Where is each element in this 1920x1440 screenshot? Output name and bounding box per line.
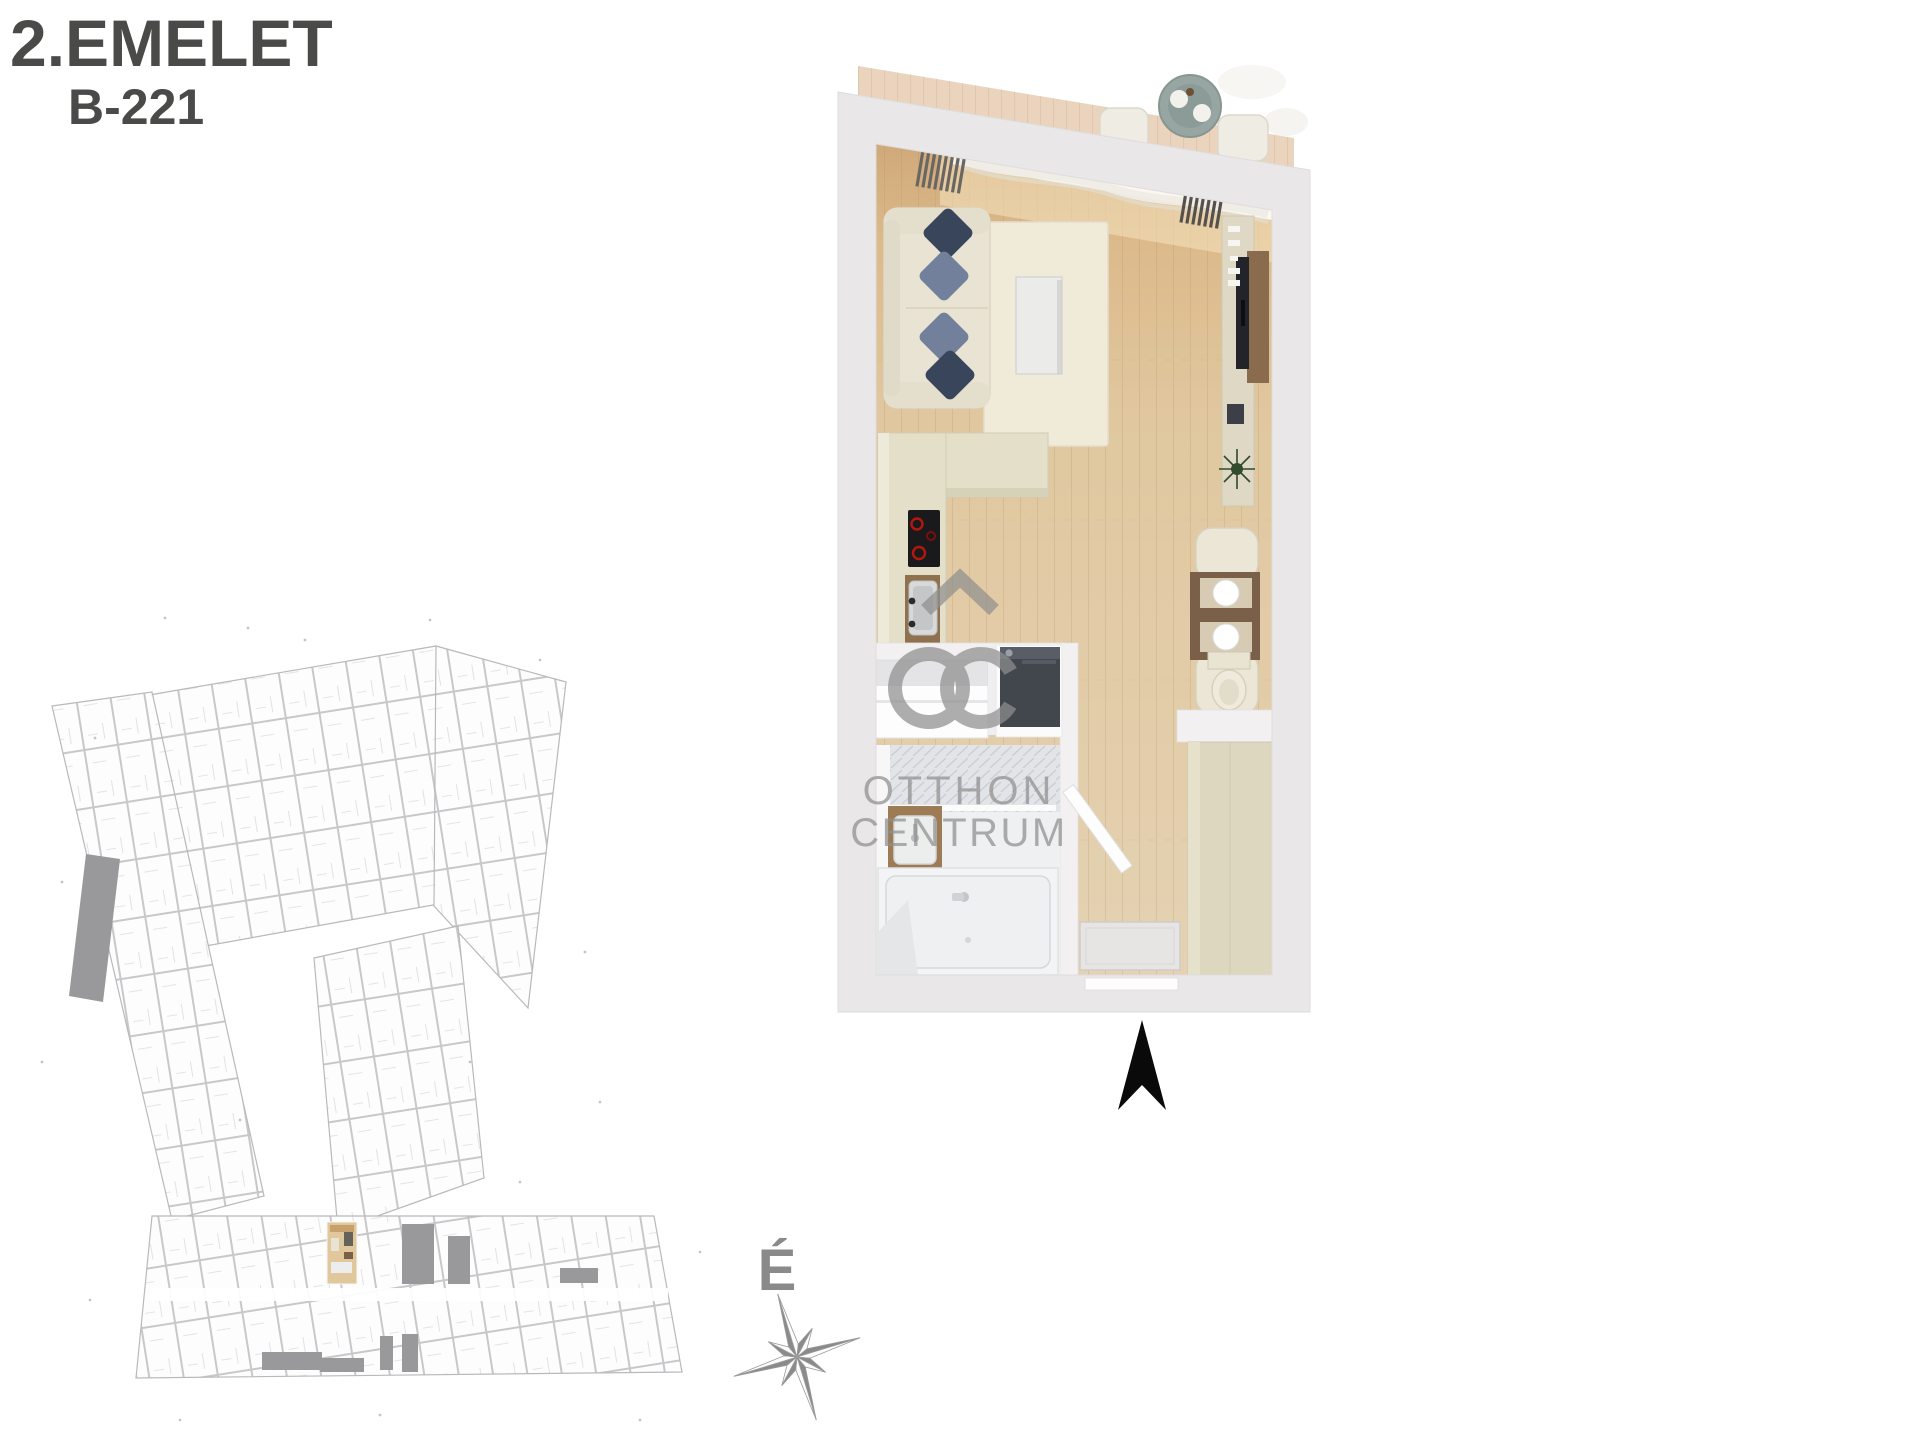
site-plan-shaft [402, 1334, 418, 1372]
balcony-lounge-cushion [1218, 65, 1286, 99]
balcony-chair [1218, 115, 1268, 161]
site-plan-shaft [262, 1352, 322, 1370]
balcony-plate [1170, 90, 1188, 108]
balcony-cup [1186, 88, 1194, 96]
site-plan-wing-middle [314, 926, 484, 1230]
site-plan-highlighted-unit [327, 1222, 357, 1284]
north-arrow [1118, 1020, 1166, 1110]
balcony-lounge-cushion [1264, 108, 1308, 136]
apartment-plan [838, 60, 1310, 1012]
toilet [1208, 652, 1250, 710]
floorplan-scene: OTTHON CENTRUM É [0, 0, 1920, 1440]
site-plan-shaft [402, 1224, 434, 1284]
site-plan-shaft [560, 1268, 598, 1283]
sofa [884, 206, 990, 408]
bathtub [878, 868, 1058, 975]
site-plan [41, 617, 702, 1422]
page: OTTHON CENTRUM É [0, 0, 1920, 1440]
site-plan-shaft [448, 1236, 470, 1284]
entrance-door [1085, 978, 1178, 990]
coffee-table [1016, 277, 1062, 374]
title-block: 2.EMELET B-221 [10, 10, 333, 132]
site-plan-shaft [380, 1336, 393, 1370]
watermark-line2: CENTRUM [850, 811, 1067, 855]
plate [1213, 624, 1239, 650]
bath-drain [965, 937, 971, 943]
speaker [1227, 404, 1244, 424]
tv-wood-panel [1247, 251, 1269, 383]
site-plan-shaft [320, 1358, 364, 1372]
balcony-plate [1193, 104, 1211, 122]
plate [1213, 580, 1239, 606]
sofa-backrest [884, 220, 900, 396]
partition-wall [1177, 710, 1272, 742]
unit-title: B-221 [68, 82, 333, 132]
site-plan-corridor-band [150, 1288, 668, 1301]
coffee-table-shadow [1057, 280, 1062, 374]
compass-rose [715, 1275, 880, 1440]
entrance-mat [1080, 922, 1180, 970]
cooktop [908, 510, 940, 567]
north-label: É [758, 1238, 797, 1303]
watermark-line1: OTTHON [863, 769, 1056, 813]
floor-title: 2.EMELET [10, 10, 333, 76]
wardrobe [1188, 742, 1272, 975]
